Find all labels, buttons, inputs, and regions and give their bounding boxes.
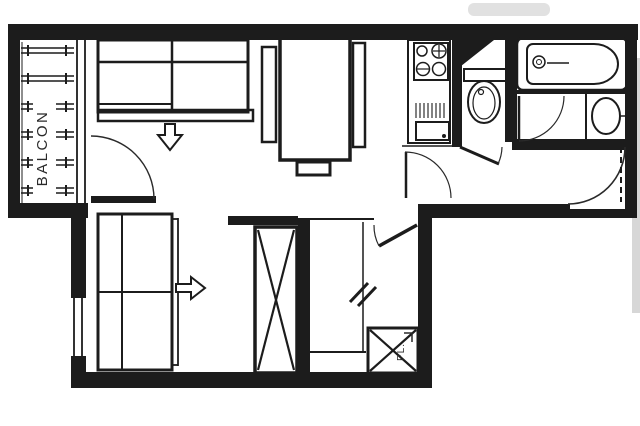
sofa-unfold-arrow-down (158, 124, 182, 150)
cabin-door-arc (374, 225, 379, 246)
bedroom-top-wall (228, 216, 298, 225)
kitchen-door-arc (405, 152, 451, 198)
balcony-door (91, 136, 156, 203)
wc (464, 69, 507, 123)
kitchen (408, 40, 450, 143)
bedroom-window (74, 298, 82, 356)
kitchen-sink-unit (416, 122, 449, 140)
balcony-door-leaf (91, 196, 156, 203)
wc-door (460, 147, 502, 164)
balcony-bottom-wall (8, 203, 88, 218)
floor-plan-drawing: BALCON (0, 0, 640, 426)
stool (297, 162, 330, 175)
hall-bottom-wall-left (432, 204, 570, 218)
wc-bath-wall (505, 40, 517, 142)
bathtub-drain (533, 56, 545, 68)
bedroom-partition-wall (298, 218, 310, 372)
bathroom-door-arc (519, 96, 564, 141)
sleeping-cabin: PL. (310, 222, 418, 373)
scan-artifacts (468, 3, 640, 313)
bed-unfold-arrow-right (176, 277, 205, 299)
kitchen-door (405, 152, 451, 198)
closet-cross: PL. (368, 328, 418, 373)
wc-door-arc (498, 147, 502, 164)
closet-label: PL. (396, 343, 407, 361)
balcony-label: BALCON (34, 110, 51, 187)
balcony-door-arc (91, 136, 154, 199)
entry-threshold (570, 209, 625, 218)
bathroom-door (519, 96, 564, 141)
floor-plan-page: BALCON (0, 0, 640, 426)
entry-door-arc (568, 147, 625, 204)
entry-door (568, 147, 625, 204)
wc-door-leaf (460, 147, 499, 164)
dining-table (280, 38, 350, 160)
walls (8, 24, 638, 388)
balcony: BALCON (21, 42, 74, 203)
stove-burners (414, 43, 448, 80)
cabin-door (374, 225, 417, 246)
chair-right (353, 43, 365, 147)
windows (74, 40, 85, 356)
scan-smudge (468, 3, 550, 16)
bathroom (517, 38, 628, 140)
sofa-bed (98, 40, 253, 121)
kitchen-vent-grill (416, 103, 444, 118)
living-room (98, 38, 365, 175)
bedroom-left-wall-upper (71, 218, 86, 298)
wardrobe-cross (255, 227, 297, 373)
bunk-bed (310, 222, 376, 352)
chair-left (262, 47, 276, 142)
toilet-cistern (464, 69, 507, 81)
bedroom (98, 214, 297, 373)
bedroom-right-wall (418, 204, 432, 388)
cabin-door-leaf (379, 225, 417, 246)
twin-bed (98, 214, 178, 370)
balcony-left-wall (8, 24, 20, 218)
bathtub (517, 38, 627, 90)
balcony-window (77, 40, 85, 203)
toilet (464, 69, 507, 123)
washbasin (586, 92, 628, 140)
